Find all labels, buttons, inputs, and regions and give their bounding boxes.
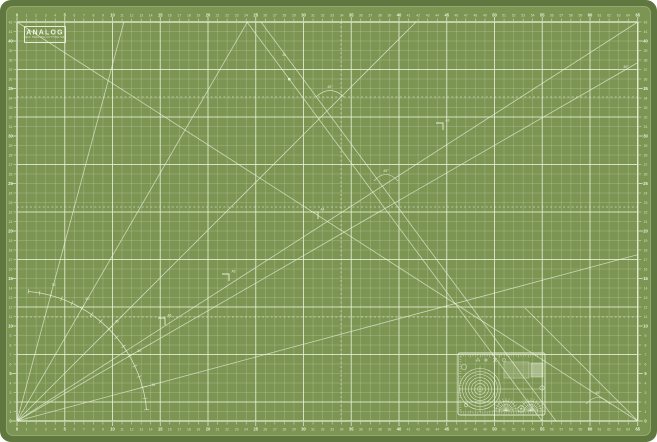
svg-text:60: 60	[588, 427, 593, 432]
svg-text:30°: 30°	[623, 65, 629, 69]
svg-text:53: 53	[521, 428, 525, 432]
svg-text:43: 43	[426, 14, 430, 18]
svg-text:5: 5	[64, 13, 67, 18]
cutting-mat: 153045607545°45°30°45°45A3A4A5A600112233…	[0, 0, 657, 442]
svg-text:23: 23	[644, 201, 648, 205]
svg-text:10: 10	[110, 427, 115, 432]
svg-text:22: 22	[644, 210, 648, 214]
svg-text:23: 23	[235, 14, 239, 18]
svg-text:37: 37	[9, 68, 13, 72]
svg-text:33: 33	[644, 106, 648, 110]
svg-text:16: 16	[9, 267, 13, 271]
svg-text:23: 23	[235, 428, 239, 432]
svg-text:16: 16	[168, 14, 172, 18]
svg-text:18: 18	[644, 248, 648, 252]
svg-text:33: 33	[330, 428, 334, 432]
svg-text:6: 6	[10, 362, 12, 366]
svg-text:59: 59	[579, 14, 583, 18]
svg-text:1: 1	[26, 428, 28, 432]
svg-text:0: 0	[16, 427, 19, 432]
svg-text:45: 45	[115, 320, 119, 324]
svg-text:47: 47	[464, 14, 468, 18]
svg-text:30: 30	[137, 349, 141, 353]
svg-text:28: 28	[283, 14, 287, 18]
svg-text:16: 16	[168, 428, 172, 432]
svg-text:12: 12	[130, 428, 134, 432]
svg-text:39: 39	[9, 49, 13, 53]
svg-text:35: 35	[643, 86, 648, 91]
brand-logo: ANALOG SELF HEALING CUTTING MAT	[24, 26, 66, 43]
svg-text:3: 3	[10, 391, 12, 395]
svg-text:10: 10	[643, 323, 648, 328]
svg-text:31: 31	[9, 125, 13, 129]
svg-text:3: 3	[645, 391, 647, 395]
svg-text:40: 40	[397, 13, 402, 18]
svg-text:40: 40	[643, 38, 648, 43]
svg-text:13: 13	[9, 296, 13, 300]
svg-text:50: 50	[492, 427, 497, 432]
svg-text:22: 22	[9, 210, 13, 214]
svg-text:32: 32	[321, 428, 325, 432]
template-panel	[458, 353, 545, 415]
svg-text:44: 44	[435, 14, 439, 18]
svg-text:15: 15	[158, 13, 163, 18]
svg-text:41: 41	[407, 14, 411, 18]
svg-text:27: 27	[273, 428, 277, 432]
svg-text:30: 30	[301, 427, 306, 432]
svg-text:17: 17	[644, 258, 648, 262]
svg-text:41: 41	[9, 30, 13, 34]
svg-text:45°: 45°	[383, 169, 389, 173]
svg-text:58: 58	[569, 14, 573, 18]
svg-text:64: 64	[626, 14, 630, 18]
svg-text:25: 25	[8, 181, 13, 186]
svg-text:28: 28	[283, 428, 287, 432]
svg-text:45: 45	[282, 53, 286, 57]
svg-text:20: 20	[206, 13, 211, 18]
svg-text:41: 41	[644, 30, 648, 34]
svg-text:9: 9	[10, 334, 12, 338]
svg-text:29: 29	[292, 14, 296, 18]
svg-text:45°: 45°	[595, 391, 601, 395]
svg-text:63: 63	[617, 428, 621, 432]
svg-text:38: 38	[378, 428, 382, 432]
svg-text:26: 26	[263, 14, 267, 18]
svg-text:41: 41	[407, 428, 411, 432]
svg-text:56: 56	[550, 14, 554, 18]
svg-text:28: 28	[644, 153, 648, 157]
svg-text:4: 4	[54, 14, 56, 18]
svg-text:24: 24	[644, 191, 648, 195]
svg-text:47: 47	[464, 428, 468, 432]
svg-text:4: 4	[645, 381, 647, 385]
svg-text:9: 9	[645, 334, 647, 338]
svg-text:43: 43	[426, 428, 430, 432]
svg-text:21: 21	[644, 220, 648, 224]
svg-text:A6: A6	[168, 314, 172, 318]
svg-text:26: 26	[9, 172, 13, 176]
svg-text:5: 5	[644, 371, 647, 376]
svg-text:17: 17	[9, 258, 13, 262]
svg-text:17: 17	[177, 428, 181, 432]
svg-text:42: 42	[9, 20, 13, 24]
svg-text:62: 62	[607, 428, 611, 432]
svg-text:1: 1	[26, 14, 28, 18]
angle-callouts: 45°45°30°45°45	[282, 53, 629, 404]
svg-text:19: 19	[644, 239, 648, 243]
svg-text:5: 5	[64, 427, 67, 432]
svg-text:7: 7	[83, 14, 85, 18]
svg-text:3: 3	[45, 428, 47, 432]
svg-text:14: 14	[644, 286, 648, 290]
svg-text:48: 48	[474, 428, 478, 432]
svg-text:27: 27	[273, 14, 277, 18]
svg-text:33: 33	[330, 14, 334, 18]
svg-text:45°: 45°	[327, 85, 333, 89]
svg-text:61: 61	[598, 14, 602, 18]
svg-text:7: 7	[10, 353, 12, 357]
svg-text:51: 51	[502, 428, 506, 432]
svg-text:56: 56	[550, 428, 554, 432]
svg-text:50: 50	[492, 13, 497, 18]
svg-text:65: 65	[635, 13, 640, 18]
svg-text:39: 39	[388, 14, 392, 18]
svg-text:1: 1	[645, 410, 647, 414]
svg-text:20: 20	[206, 427, 211, 432]
svg-text:36: 36	[359, 428, 363, 432]
svg-text:30: 30	[8, 133, 13, 138]
svg-text:31: 31	[644, 125, 648, 129]
svg-text:6: 6	[73, 428, 75, 432]
svg-text:51: 51	[502, 14, 506, 18]
svg-text:36: 36	[644, 77, 648, 81]
svg-text:33: 33	[9, 106, 13, 110]
svg-text:52: 52	[512, 14, 516, 18]
svg-text:0: 0	[9, 418, 12, 423]
svg-text:57: 57	[559, 14, 563, 18]
svg-text:8: 8	[92, 428, 94, 432]
svg-text:14: 14	[9, 286, 13, 290]
svg-text:20: 20	[8, 228, 13, 233]
svg-text:15: 15	[643, 276, 648, 281]
svg-text:37: 37	[368, 14, 372, 18]
svg-text:8: 8	[645, 343, 647, 347]
svg-text:39: 39	[388, 428, 392, 432]
svg-text:10: 10	[110, 13, 115, 18]
svg-text:2: 2	[35, 428, 37, 432]
svg-text:34: 34	[340, 14, 344, 18]
svg-text:6: 6	[73, 14, 75, 18]
svg-text:65: 65	[635, 427, 640, 432]
svg-text:A5: A5	[232, 270, 236, 274]
svg-text:35: 35	[8, 86, 13, 91]
svg-text:35: 35	[349, 13, 354, 18]
svg-text:18: 18	[9, 248, 13, 252]
svg-text:46: 46	[454, 428, 458, 432]
svg-text:39: 39	[644, 49, 648, 53]
svg-text:3: 3	[45, 14, 47, 18]
svg-text:5: 5	[9, 371, 12, 376]
svg-text:11: 11	[120, 428, 124, 432]
svg-text:19: 19	[9, 239, 13, 243]
svg-text:0: 0	[644, 418, 647, 423]
svg-text:27: 27	[9, 163, 13, 167]
svg-text:30: 30	[643, 133, 648, 138]
svg-text:52: 52	[512, 428, 516, 432]
svg-text:28: 28	[9, 153, 13, 157]
svg-text:7: 7	[645, 353, 647, 357]
svg-text:34: 34	[644, 96, 648, 100]
svg-text:25: 25	[253, 13, 258, 18]
svg-text:25: 25	[643, 181, 648, 186]
svg-text:42: 42	[416, 14, 420, 18]
svg-text:45: 45	[444, 13, 449, 18]
svg-text:46: 46	[454, 14, 458, 18]
svg-text:44: 44	[435, 428, 439, 432]
svg-text:32: 32	[321, 14, 325, 18]
svg-text:55: 55	[540, 13, 545, 18]
svg-text:15: 15	[8, 276, 13, 281]
svg-text:21: 21	[9, 220, 13, 224]
svg-text:10: 10	[8, 323, 13, 328]
svg-text:19: 19	[197, 428, 201, 432]
svg-text:49: 49	[483, 428, 487, 432]
svg-text:24: 24	[244, 14, 248, 18]
svg-text:13: 13	[644, 296, 648, 300]
svg-text:42: 42	[416, 428, 420, 432]
svg-text:40: 40	[8, 38, 13, 43]
svg-text:23: 23	[9, 201, 13, 205]
svg-text:29: 29	[9, 144, 13, 148]
svg-text:38: 38	[644, 58, 648, 62]
svg-text:24: 24	[244, 428, 248, 432]
svg-text:32: 32	[644, 115, 648, 119]
svg-text:19: 19	[197, 14, 201, 18]
svg-text:54: 54	[531, 428, 535, 432]
svg-text:57: 57	[559, 428, 563, 432]
brand-tagline: SELF HEALING CUTTING MAT	[24, 36, 67, 40]
svg-text:31: 31	[311, 14, 315, 18]
svg-text:54: 54	[531, 14, 535, 18]
svg-text:37: 37	[644, 68, 648, 72]
svg-text:11: 11	[120, 14, 124, 18]
svg-text:62: 62	[607, 14, 611, 18]
svg-text:25: 25	[253, 427, 258, 432]
svg-text:27: 27	[644, 163, 648, 167]
svg-text:15: 15	[158, 427, 163, 432]
svg-text:59: 59	[579, 428, 583, 432]
svg-text:A3: A3	[446, 119, 450, 123]
svg-text:13: 13	[139, 14, 143, 18]
svg-text:12: 12	[9, 305, 13, 309]
svg-text:40: 40	[397, 427, 402, 432]
svg-text:18: 18	[187, 428, 191, 432]
svg-text:11: 11	[644, 315, 648, 319]
svg-text:29: 29	[292, 428, 296, 432]
brand-name: ANALOG	[26, 30, 64, 37]
svg-text:6: 6	[645, 362, 647, 366]
svg-text:35: 35	[349, 427, 354, 432]
svg-text:21: 21	[216, 428, 220, 432]
svg-text:20: 20	[643, 228, 648, 233]
mat-printed-scene: 153045607545°45°30°45°45A3A4A5A600112233…	[0, 0, 657, 442]
svg-text:34: 34	[9, 96, 13, 100]
svg-text:26: 26	[263, 428, 267, 432]
svg-text:14: 14	[149, 14, 153, 18]
svg-text:49: 49	[483, 14, 487, 18]
svg-text:21: 21	[216, 14, 220, 18]
svg-text:12: 12	[644, 305, 648, 309]
svg-text:75: 75	[51, 283, 55, 287]
svg-text:14: 14	[149, 428, 153, 432]
svg-text:53: 53	[521, 14, 525, 18]
svg-text:29: 29	[644, 144, 648, 148]
svg-text:30: 30	[301, 13, 306, 18]
svg-text:36: 36	[359, 14, 363, 18]
svg-text:38: 38	[9, 58, 13, 62]
svg-text:16: 16	[644, 267, 648, 271]
svg-text:22: 22	[225, 428, 229, 432]
svg-text:37: 37	[368, 428, 372, 432]
svg-text:4: 4	[10, 381, 12, 385]
svg-text:8: 8	[92, 14, 94, 18]
svg-text:9: 9	[102, 14, 104, 18]
svg-text:45: 45	[444, 427, 449, 432]
svg-text:58: 58	[569, 428, 573, 432]
svg-text:61: 61	[598, 428, 602, 432]
svg-text:22: 22	[225, 14, 229, 18]
svg-text:0: 0	[16, 13, 19, 18]
svg-text:4: 4	[54, 428, 56, 432]
svg-text:31: 31	[311, 428, 315, 432]
svg-text:24: 24	[9, 191, 13, 195]
svg-text:2: 2	[645, 400, 647, 404]
svg-text:38: 38	[378, 14, 382, 18]
svg-text:42: 42	[644, 20, 648, 24]
svg-text:26: 26	[644, 172, 648, 176]
svg-text:12: 12	[130, 14, 134, 18]
svg-text:A4: A4	[321, 208, 325, 212]
svg-text:9: 9	[102, 428, 104, 432]
svg-text:63: 63	[617, 14, 621, 18]
cutting-mat-photo: 153045607545°45°30°45°45A3A4A5A600112233…	[0, 0, 657, 442]
svg-text:15: 15	[151, 383, 155, 387]
svg-text:32: 32	[9, 115, 13, 119]
svg-text:36: 36	[9, 77, 13, 81]
svg-text:60: 60	[588, 13, 593, 18]
svg-text:55: 55	[540, 427, 545, 432]
svg-text:2: 2	[10, 400, 12, 404]
svg-text:17: 17	[177, 14, 181, 18]
svg-text:13: 13	[139, 428, 143, 432]
svg-text:64: 64	[626, 428, 630, 432]
svg-text:60: 60	[86, 297, 90, 301]
svg-text:18: 18	[187, 14, 191, 18]
svg-text:1: 1	[10, 410, 12, 414]
svg-text:8: 8	[10, 343, 12, 347]
svg-text:7: 7	[83, 428, 85, 432]
svg-text:34: 34	[340, 428, 344, 432]
svg-text:2: 2	[35, 14, 37, 18]
svg-text:48: 48	[474, 14, 478, 18]
svg-text:11: 11	[9, 315, 13, 319]
